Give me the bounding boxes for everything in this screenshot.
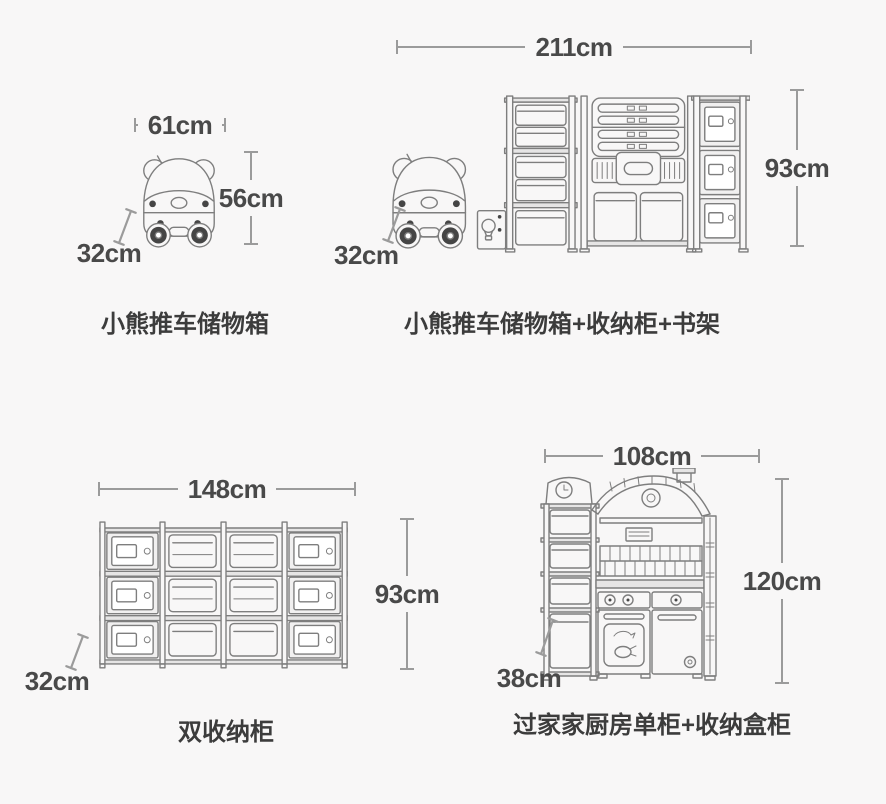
height-value: 120cm [743,568,821,594]
dim-line [250,216,252,243]
dim-line [623,46,750,48]
height-dimension: 56cm [217,151,285,245]
side-panel [704,516,716,680]
bear-cart-figure [144,156,214,247]
door-cabinet [692,96,750,249]
width-dimension: 108cm [544,443,760,469]
dim-line [796,186,798,245]
width-value: 211cm [535,34,612,60]
dim-tick [224,118,226,132]
feet [506,249,748,252]
chicken-icon [614,631,636,657]
balloon-icon [482,219,495,240]
dim-line [398,46,525,48]
depth-value: 38cm [496,665,562,691]
dim-tick [354,482,356,496]
bear-cart-drawing [134,146,224,248]
width-value: 148cm [188,476,266,502]
roof [592,468,710,516]
tile-backsplash [600,546,702,576]
depth-value: 32cm [24,668,90,694]
height-value: 93cm [765,155,830,181]
product-name: 过家家厨房单柜+收纳盒柜 [497,705,807,740]
width-value: 61cm [148,112,213,138]
height-value: 56cm [219,185,284,211]
product-dimension-sheet: 61cm [0,0,886,804]
width-dimension: 148cm [98,476,356,502]
dim-tick [750,40,752,54]
stove-knob-icon [605,595,681,605]
dim-line [406,520,408,576]
dim-line [781,599,783,682]
width-value: 108cm [613,443,691,469]
double-cabinet-drawing [98,514,354,670]
product-name: 小熊推车储物箱 [78,304,292,339]
dim-tick [775,682,789,684]
height-dimension: 93cm [374,518,440,670]
balloon-panel [477,211,505,249]
dim-line [546,455,603,457]
width-dimension: 211cm [396,34,752,60]
dim-tick [244,243,258,245]
depth-value: 32cm [76,240,142,266]
dim-tick [758,449,760,463]
dim-line [136,124,138,126]
height-value: 93cm [375,581,440,607]
kitchen-body [596,489,704,678]
bin-tower [505,96,577,249]
dim-line [100,488,178,490]
depth-value: 32cm [334,242,396,268]
height-dimension: 120cm [740,478,824,684]
wheel-icon [188,223,211,246]
dim-tick [790,245,804,247]
play-kitchen-drawing [538,468,738,686]
dim-line [276,488,354,490]
dim-line [796,91,798,150]
bookshelf-section [581,96,694,249]
dim-line [250,153,252,180]
product-name: 小熊推车储物箱+收纳柜+书架 [404,304,720,339]
dim-line [406,612,408,668]
width-dimension: 61cm [134,112,226,138]
dim-line [701,455,758,457]
height-dimension: 93cm [764,89,830,247]
clock-icon [556,482,572,498]
product-name: 双收纳柜 [133,712,319,747]
wheel-icon [147,223,170,246]
bear-combo-drawing [388,86,750,253]
dim-line [781,480,783,563]
dim-tick [400,668,414,670]
depth-dimension-line [534,614,560,660]
